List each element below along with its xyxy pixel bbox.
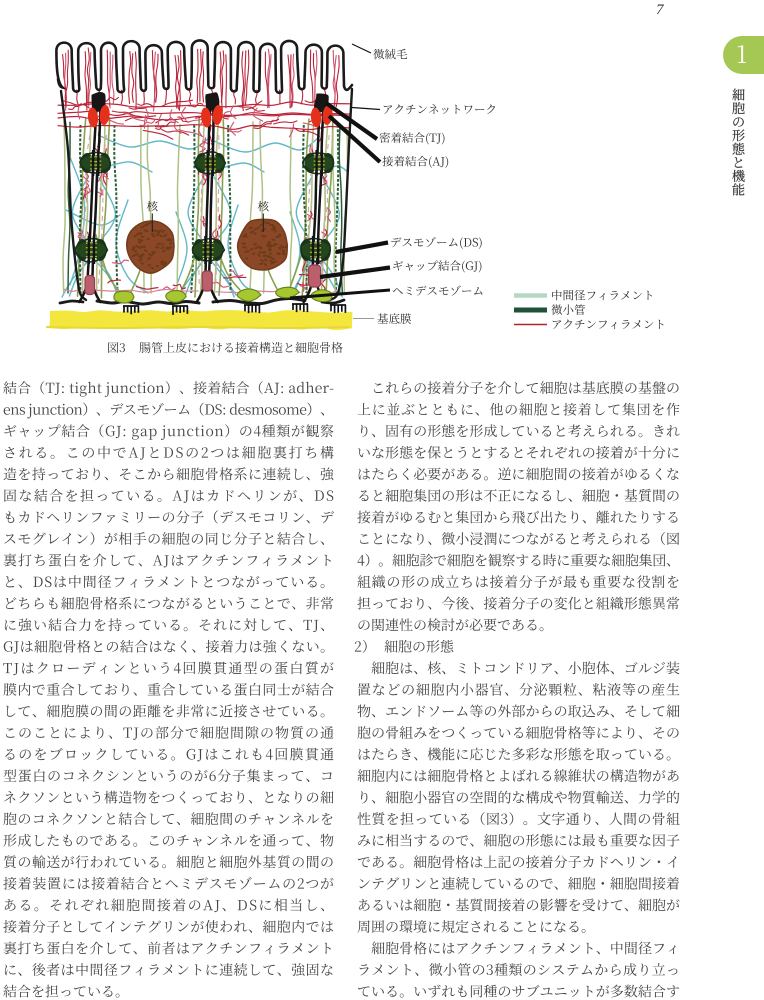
svg-text:7: 7 <box>656 2 665 18</box>
